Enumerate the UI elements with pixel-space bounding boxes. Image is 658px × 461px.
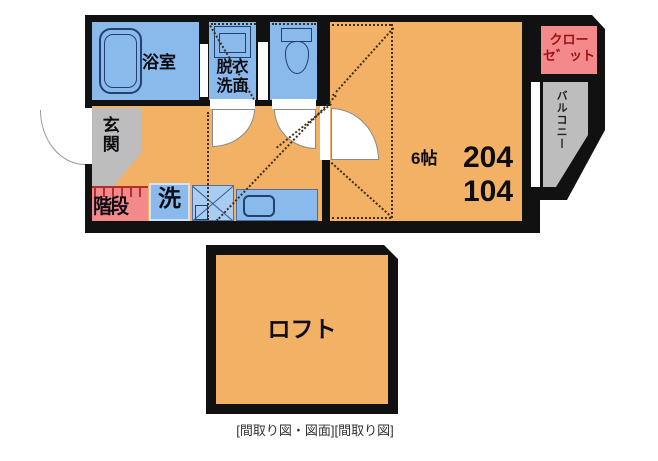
- loft-room: ロフト: [216, 255, 388, 404]
- stairs-label: 階段: [93, 196, 127, 218]
- entrance-label: 玄関: [99, 116, 118, 154]
- closet-label-line1: クロー: [549, 32, 588, 47]
- balcony-window-gap: [531, 82, 540, 187]
- washroom-door-gap: [210, 99, 255, 109]
- closet-label-line2: セ゛ット: [543, 48, 595, 63]
- washroom-label-line1: 脱衣: [216, 59, 248, 76]
- balcony-label: バルコニー: [555, 90, 567, 150]
- mainroom-dotted-vertical: [391, 24, 393, 218]
- main-room-door-gap: [320, 106, 330, 160]
- bathroom-door-gap: [200, 44, 208, 97]
- bathtub-icon-inner: [104, 34, 137, 88]
- toilet-door-gap: [272, 99, 316, 109]
- toilet-tank-icon: [281, 28, 312, 42]
- bathroom-label: 浴室: [142, 54, 176, 73]
- kitchen-sink-unit: [192, 185, 234, 221]
- washroom-label: 脱衣 洗面: [209, 58, 256, 96]
- unit-number-lower: 104: [463, 175, 513, 208]
- unit-number-upper: 204: [463, 141, 513, 174]
- main-room-size-label: 6帖: [411, 150, 437, 169]
- washroom-toilet-gap: [258, 42, 268, 100]
- floorplan-image: 浴室 脱衣 洗面 玄関 階段 洗 6帖 204 104 クロー セ゛ット バルコ…: [0, 0, 658, 461]
- washroom-label-line2: 洗面: [216, 78, 248, 95]
- corridor-dotted-vertical: [207, 112, 209, 220]
- image-caption: [間取り図・図面][間取り図]: [0, 420, 644, 439]
- counter-basin-icon: [243, 195, 275, 217]
- closet-label: クロー セ゛ット: [541, 32, 597, 64]
- washroom-dotted-top: [211, 23, 256, 25]
- mainroom-dotted-top: [332, 24, 391, 26]
- washer-label: 洗: [149, 186, 190, 211]
- entrance-door-swing-icon: [40, 110, 85, 165]
- loft-label: ロフト: [268, 317, 337, 342]
- unit-numbers: 204 104: [458, 141, 518, 209]
- mainroom-dotted-bottom: [332, 217, 391, 219]
- toilet-dotted-top: [272, 23, 316, 25]
- entrance-door-gap: [84, 108, 92, 164]
